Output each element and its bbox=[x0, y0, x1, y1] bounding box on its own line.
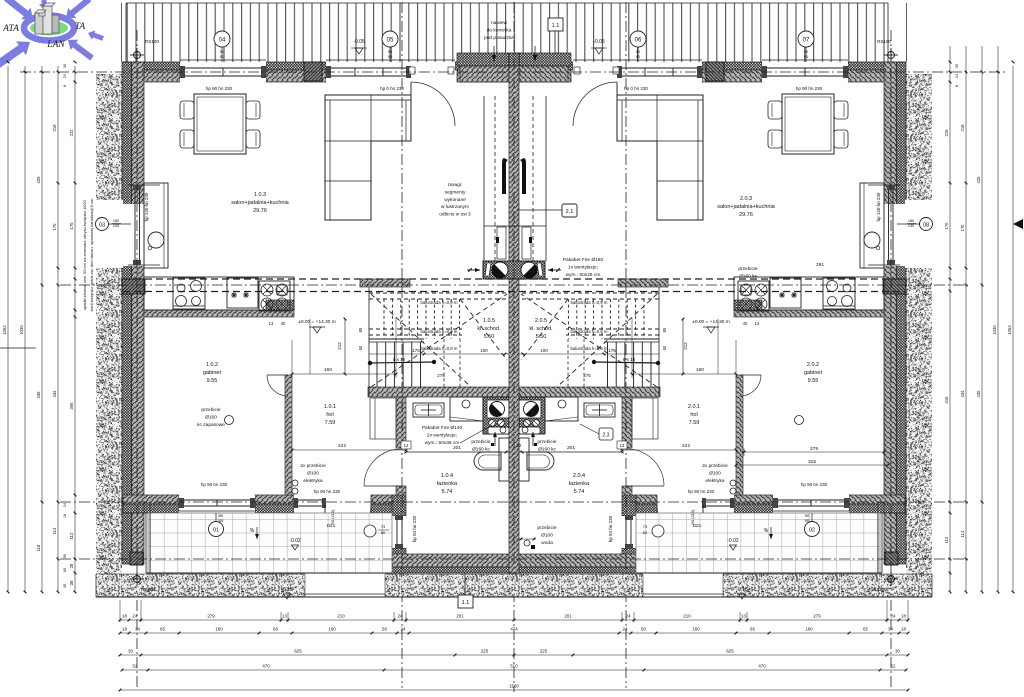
svg-text:160: 160 bbox=[324, 367, 332, 373]
svg-text:RS100: RS100 bbox=[145, 39, 159, 44]
svg-text:60: 60 bbox=[63, 568, 67, 572]
svg-text:13: 13 bbox=[620, 443, 625, 448]
svg-text:118: 118 bbox=[36, 544, 41, 551]
svg-text:±0.00 = +14.30 m: ±0.00 = +14.30 m bbox=[298, 319, 336, 325]
svg-text:woda: woda bbox=[541, 540, 553, 546]
svg-text:Pakabet Fire Ø140: Pakabet Fire Ø140 bbox=[422, 425, 463, 431]
svg-text:30: 30 bbox=[955, 64, 959, 68]
svg-text:160: 160 bbox=[696, 367, 704, 373]
svg-text:-0.15: -0.15 bbox=[281, 587, 293, 593]
svg-text:24: 24 bbox=[63, 503, 67, 507]
svg-text:02: 02 bbox=[809, 528, 815, 534]
svg-text:160: 160 bbox=[215, 627, 223, 632]
svg-text:balustrada h=0,9 m: balustrada h=0,9 m bbox=[421, 300, 458, 305]
svg-text:7.59: 7.59 bbox=[689, 420, 700, 426]
svg-text:przebicie: przebicie bbox=[537, 525, 557, 531]
svg-text:170: 170 bbox=[69, 222, 74, 230]
svg-text:222: 222 bbox=[682, 443, 690, 449]
svg-text:do kominka: do kominka bbox=[487, 27, 512, 33]
svg-text:kl. schod.: kl. schod. bbox=[477, 326, 501, 332]
svg-text:18: 18 bbox=[63, 514, 67, 518]
svg-text:90: 90 bbox=[804, 54, 809, 59]
svg-text:1.1: 1.1 bbox=[552, 23, 560, 29]
svg-text:odbiciu w osi 3: odbiciu w osi 3 bbox=[439, 212, 471, 218]
svg-text:2.0.1: 2.0.1 bbox=[688, 404, 700, 410]
svg-text:66: 66 bbox=[273, 627, 278, 632]
svg-text:balustrada h=0,9 m: balustrada h=0,9 m bbox=[571, 300, 608, 305]
svg-text:salon+jadalnia+kuchnia: salon+jadalnia+kuchnia bbox=[717, 204, 775, 210]
svg-text:90: 90 bbox=[636, 54, 641, 59]
svg-text:Pakabet Fire Ø180: Pakabet Fire Ø180 bbox=[563, 257, 604, 263]
svg-text:52: 52 bbox=[891, 664, 896, 669]
svg-text:spadki zlewow zew. 50 cm na ze: spadki zlewow zew. 50 cm na zewnatrz obr… bbox=[82, 199, 87, 310]
svg-text:34: 34 bbox=[888, 627, 893, 632]
svg-text:180: 180 bbox=[908, 219, 914, 223]
svg-text:18: 18 bbox=[901, 614, 906, 619]
svg-text:01: 01 bbox=[213, 528, 219, 534]
svg-text:13: 13 bbox=[755, 321, 760, 326]
svg-text:1560: 1560 bbox=[509, 684, 519, 689]
svg-text:elektryka: elektryka bbox=[705, 478, 725, 484]
svg-text:ATA: ATA bbox=[2, 24, 19, 34]
svg-text:279: 279 bbox=[813, 614, 821, 619]
svg-text:hp 90 hn 230: hp 90 hn 230 bbox=[796, 86, 823, 91]
svg-text:52: 52 bbox=[133, 664, 138, 669]
svg-text:8 x 18: 8 x 18 bbox=[623, 357, 636, 362]
svg-text:Ø100: Ø100 bbox=[541, 532, 553, 538]
svg-text:201: 201 bbox=[567, 445, 575, 451]
svg-text:03: 03 bbox=[99, 223, 105, 229]
svg-text:gabinet: gabinet bbox=[203, 370, 222, 376]
svg-text:625: 625 bbox=[726, 649, 734, 654]
svg-text:1030: 1030 bbox=[992, 325, 997, 335]
svg-text:434: 434 bbox=[960, 390, 965, 398]
svg-text:9.55: 9.55 bbox=[207, 378, 218, 384]
svg-text:hol: hol bbox=[326, 412, 333, 418]
svg-text:2x wentylacje;: 2x wentylacje; bbox=[427, 432, 457, 438]
svg-text:8 x 18: 8 x 18 bbox=[393, 357, 406, 362]
svg-text:279: 279 bbox=[810, 446, 818, 452]
svg-text:24: 24 bbox=[623, 627, 628, 632]
svg-text:85: 85 bbox=[662, 327, 667, 332]
svg-text:29.76: 29.76 bbox=[253, 208, 267, 214]
svg-text:Uwagi:: Uwagi: bbox=[448, 182, 463, 188]
svg-text:DZ1: DZ1 bbox=[327, 523, 336, 528]
svg-text:170: 170 bbox=[960, 224, 965, 232]
svg-text:291: 291 bbox=[816, 262, 824, 268]
svg-text:2.0.2: 2.0.2 bbox=[807, 362, 819, 368]
svg-text:06: 06 bbox=[635, 38, 642, 44]
svg-text:222: 222 bbox=[338, 443, 346, 449]
svg-text:nawiew: nawiew bbox=[491, 20, 508, 26]
svg-text:kc zapasowe: kc zapasowe bbox=[197, 422, 225, 428]
svg-text:hp 90 hn 230: hp 90 hn 230 bbox=[206, 86, 233, 91]
svg-text:przebicie: przebicie bbox=[201, 407, 221, 413]
svg-text:470: 470 bbox=[262, 664, 270, 669]
svg-text:50: 50 bbox=[382, 627, 387, 632]
svg-text:356: 356 bbox=[69, 402, 74, 410]
svg-text:TA: TA bbox=[75, 22, 86, 32]
svg-text:66: 66 bbox=[750, 627, 755, 632]
svg-text:90: 90 bbox=[219, 518, 224, 523]
svg-text:275: 275 bbox=[437, 373, 445, 378]
svg-text:5.74: 5.74 bbox=[442, 489, 453, 495]
svg-text:Ø160 kc: Ø160 kc bbox=[538, 446, 556, 452]
svg-text:60: 60 bbox=[358, 345, 363, 350]
svg-text:28: 28 bbox=[69, 563, 74, 568]
svg-text:-0.02: -0.02 bbox=[727, 538, 739, 544]
svg-text:hol: hol bbox=[690, 412, 697, 418]
svg-text:201: 201 bbox=[456, 614, 464, 619]
svg-text:hp 90 hn 230: hp 90 hn 230 bbox=[314, 489, 341, 494]
svg-text:kl. schod.: kl. schod. bbox=[529, 326, 553, 332]
svg-text:170: 170 bbox=[944, 222, 949, 230]
svg-text:08: 08 bbox=[923, 223, 929, 229]
svg-text:-0.02: -0.02 bbox=[289, 538, 301, 544]
svg-text:130: 130 bbox=[113, 224, 119, 228]
svg-text:hp 90 hn 230: hp 90 hn 230 bbox=[201, 482, 228, 487]
svg-text:13: 13 bbox=[741, 614, 746, 619]
svg-text:5.50: 5.50 bbox=[484, 334, 495, 340]
svg-text:175: 175 bbox=[412, 348, 420, 353]
svg-text:225: 225 bbox=[481, 649, 489, 654]
svg-text:315: 315 bbox=[808, 459, 816, 465]
svg-text:510: 510 bbox=[510, 664, 518, 669]
svg-text:5.50: 5.50 bbox=[536, 334, 547, 340]
svg-text:219: 219 bbox=[944, 129, 949, 137]
svg-text:hp 0 hn 230: hp 0 hn 230 bbox=[624, 86, 648, 91]
svg-text:18: 18 bbox=[122, 614, 127, 619]
svg-text:RS100: RS100 bbox=[877, 39, 891, 44]
svg-text:-0.05: -0.05 bbox=[593, 39, 605, 45]
svg-text:balustrada h=0,9 m: balustrada h=0,9 m bbox=[421, 346, 458, 351]
svg-text:24: 24 bbox=[63, 74, 67, 78]
svg-text:2x przebicie: 2x przebicie bbox=[300, 463, 326, 469]
svg-text:210: 210 bbox=[337, 614, 345, 619]
svg-text:34: 34 bbox=[135, 627, 140, 632]
svg-text:40: 40 bbox=[281, 321, 286, 326]
svg-text:salon+jadalnia+kuchnia: salon+jadalnia+kuchnia bbox=[231, 200, 289, 206]
svg-text:05: 05 bbox=[387, 38, 394, 44]
svg-text:1.0.1: 1.0.1 bbox=[324, 404, 336, 410]
svg-text:65: 65 bbox=[160, 627, 165, 632]
svg-text:1.0.4: 1.0.4 bbox=[441, 473, 453, 479]
svg-text:w lustrzanym: w lustrzanym bbox=[441, 204, 469, 210]
svg-text:160: 160 bbox=[692, 627, 700, 632]
svg-text:elektryka: elektryka bbox=[303, 478, 323, 484]
svg-text:LAN: LAN bbox=[46, 40, 65, 50]
svg-text:180: 180 bbox=[113, 219, 119, 223]
svg-text:%: % bbox=[250, 528, 255, 534]
svg-text:±0.00 = +14.30 m: ±0.00 = +14.30 m bbox=[692, 319, 730, 325]
svg-text:1.1: 1.1 bbox=[462, 600, 470, 606]
svg-text:219: 219 bbox=[52, 124, 57, 132]
svg-text:18: 18 bbox=[122, 627, 127, 632]
svg-text:100: 100 bbox=[540, 348, 548, 353]
svg-text:24: 24 bbox=[955, 74, 959, 78]
svg-text:balustrada h=0,9 m: balustrada h=0,9 m bbox=[421, 329, 458, 334]
svg-text:gabinet: gabinet bbox=[804, 370, 823, 376]
svg-text:175: 175 bbox=[608, 348, 616, 353]
svg-text:1064: 1064 bbox=[2, 325, 7, 335]
svg-text:hp 0 hn 230: hp 0 hn 230 bbox=[380, 86, 404, 91]
svg-text:50: 50 bbox=[641, 627, 646, 632]
svg-text:219: 219 bbox=[960, 124, 965, 132]
svg-text:130: 130 bbox=[908, 224, 914, 228]
svg-text:2.0.3: 2.0.3 bbox=[740, 196, 752, 202]
svg-text:85: 85 bbox=[358, 327, 363, 332]
svg-text:38: 38 bbox=[69, 580, 74, 585]
svg-text:425: 425 bbox=[976, 176, 981, 184]
svg-text:8: 8 bbox=[63, 85, 67, 87]
svg-text:pod posadzka: pod posadzka bbox=[484, 35, 514, 41]
svg-text:Ø100: Ø100 bbox=[709, 470, 721, 476]
svg-text:13: 13 bbox=[269, 321, 274, 326]
svg-text:Ø160: Ø160 bbox=[205, 414, 217, 420]
svg-text:275: 275 bbox=[583, 373, 591, 378]
svg-text:279: 279 bbox=[207, 614, 215, 619]
svg-text:DZ1: DZ1 bbox=[693, 523, 702, 528]
svg-text:hp 90 hn 230: hp 90 hn 230 bbox=[688, 489, 715, 494]
svg-text:22: 22 bbox=[517, 443, 522, 448]
svg-text:73: 73 bbox=[643, 524, 648, 529]
svg-text:Ø160 kc: Ø160 kc bbox=[472, 446, 490, 452]
svg-text:balustrada h=0,9 m: balustrada h=0,9 m bbox=[571, 346, 608, 351]
svg-text:RS100: RS100 bbox=[873, 587, 887, 592]
svg-text:160: 160 bbox=[805, 627, 813, 632]
svg-text:04: 04 bbox=[219, 38, 226, 44]
svg-text:80: 80 bbox=[643, 530, 648, 535]
svg-text:12: 12 bbox=[404, 443, 409, 448]
svg-text:40: 40 bbox=[743, 321, 748, 326]
svg-text:%: % bbox=[764, 528, 769, 534]
svg-text:1.0.5: 1.0.5 bbox=[483, 318, 495, 324]
svg-text:24: 24 bbox=[398, 614, 403, 619]
svg-text:24: 24 bbox=[401, 627, 406, 632]
svg-text:212: 212 bbox=[683, 342, 688, 350]
svg-text:1.0.3: 1.0.3 bbox=[254, 192, 266, 198]
svg-text:łazienka: łazienka bbox=[569, 481, 590, 487]
svg-text:212: 212 bbox=[337, 342, 342, 350]
svg-text:29.76: 29.76 bbox=[739, 212, 753, 218]
svg-text:30: 30 bbox=[63, 64, 67, 68]
svg-text:9.55: 9.55 bbox=[808, 378, 819, 384]
svg-text:1x wentylacje;: 1x wentylacje; bbox=[568, 264, 598, 270]
svg-text:112: 112 bbox=[944, 536, 949, 543]
svg-text:24: 24 bbox=[133, 614, 138, 619]
svg-text:210: 210 bbox=[683, 614, 691, 619]
svg-text:30: 30 bbox=[128, 649, 133, 654]
svg-text:30: 30 bbox=[63, 584, 67, 588]
svg-text:114: 114 bbox=[960, 530, 965, 537]
svg-text:-0.15: -0.15 bbox=[736, 587, 748, 593]
svg-text:hp 140 hn 230: hp 140 hn 230 bbox=[876, 192, 881, 221]
svg-text:Ø160 ks: Ø160 ks bbox=[739, 273, 757, 279]
svg-text:hp 84 hn 230: hp 84 hn 230 bbox=[412, 515, 417, 542]
svg-text:8: 8 bbox=[955, 85, 959, 87]
svg-text:474: 474 bbox=[510, 627, 518, 632]
svg-text:2.0.4: 2.0.4 bbox=[573, 473, 585, 479]
svg-text:7.59: 7.59 bbox=[325, 420, 336, 426]
svg-text:przebicie: przebicie bbox=[471, 439, 491, 445]
svg-text:07: 07 bbox=[803, 38, 810, 44]
svg-text:415: 415 bbox=[944, 396, 949, 404]
svg-text:65: 65 bbox=[863, 627, 868, 632]
svg-text:hp 84 hn 230: hp 84 hn 230 bbox=[608, 515, 613, 542]
svg-text:201: 201 bbox=[564, 614, 572, 619]
svg-text:100: 100 bbox=[480, 348, 488, 353]
svg-text:5.74: 5.74 bbox=[574, 489, 585, 495]
svg-text:30: 30 bbox=[895, 649, 900, 654]
svg-text:przebicie: przebicie bbox=[537, 439, 557, 445]
svg-text:18: 18 bbox=[901, 627, 906, 632]
svg-text:hp 90 hn 230: hp 90 hn 230 bbox=[801, 482, 828, 487]
svg-text:90: 90 bbox=[63, 554, 67, 558]
svg-text:1.0.2: 1.0.2 bbox=[206, 362, 218, 368]
svg-text:114: 114 bbox=[52, 527, 57, 534]
svg-text:24: 24 bbox=[891, 614, 896, 619]
svg-text:hp 140 hn 230: hp 140 hn 230 bbox=[144, 192, 149, 221]
svg-text:90: 90 bbox=[388, 54, 393, 59]
svg-text:2.0.5: 2.0.5 bbox=[535, 318, 547, 324]
svg-text:434: 434 bbox=[52, 390, 57, 398]
svg-text:60: 60 bbox=[662, 345, 667, 350]
svg-text:2x przebicie: 2x przebicie bbox=[702, 463, 728, 469]
svg-text:24: 24 bbox=[626, 614, 631, 619]
svg-text:160: 160 bbox=[328, 627, 336, 632]
svg-text:170: 170 bbox=[52, 223, 57, 231]
svg-text:222: 222 bbox=[69, 129, 74, 137]
svg-text:425: 425 bbox=[36, 176, 41, 184]
svg-text:przebicie: przebicie bbox=[738, 266, 758, 272]
svg-text:wym.: 50x26 cm: wym.: 50x26 cm bbox=[566, 272, 601, 278]
svg-text:470: 470 bbox=[758, 664, 766, 669]
svg-text:435: 435 bbox=[36, 391, 41, 399]
svg-text:80: 80 bbox=[381, 530, 386, 535]
svg-text:wykonane: wykonane bbox=[444, 197, 466, 203]
svg-text:1030: 1030 bbox=[19, 325, 24, 335]
svg-text:-0.05: -0.05 bbox=[353, 39, 365, 45]
svg-text:201: 201 bbox=[453, 445, 461, 451]
svg-text:Ø100: Ø100 bbox=[307, 470, 319, 476]
svg-text:wzdl budynku spadz.zw.-dno otw: wzdl budynku spadz.zw.-dno otworu. opado… bbox=[89, 198, 94, 311]
svg-text:RS100: RS100 bbox=[141, 587, 155, 592]
svg-text:625: 625 bbox=[294, 649, 302, 654]
svg-text:90: 90 bbox=[805, 518, 810, 523]
svg-text:wym.: 50x36 cm: wym.: 50x36 cm bbox=[425, 440, 460, 446]
svg-text:1064: 1064 bbox=[1007, 325, 1012, 335]
svg-text:112: 112 bbox=[69, 532, 74, 539]
svg-text:łazienka: łazienka bbox=[437, 481, 458, 487]
svg-text:90: 90 bbox=[220, 54, 225, 59]
svg-text:segmenty: segmenty bbox=[445, 189, 466, 195]
svg-text:13: 13 bbox=[282, 614, 287, 619]
svg-text:73: 73 bbox=[381, 524, 386, 529]
svg-text:2.3: 2.3 bbox=[603, 433, 610, 439]
svg-text:balustrada h=0,9 m: balustrada h=0,9 m bbox=[571, 329, 608, 334]
svg-text:435: 435 bbox=[976, 390, 981, 398]
svg-text:225: 225 bbox=[540, 649, 548, 654]
svg-text:2.1: 2.1 bbox=[566, 209, 574, 215]
